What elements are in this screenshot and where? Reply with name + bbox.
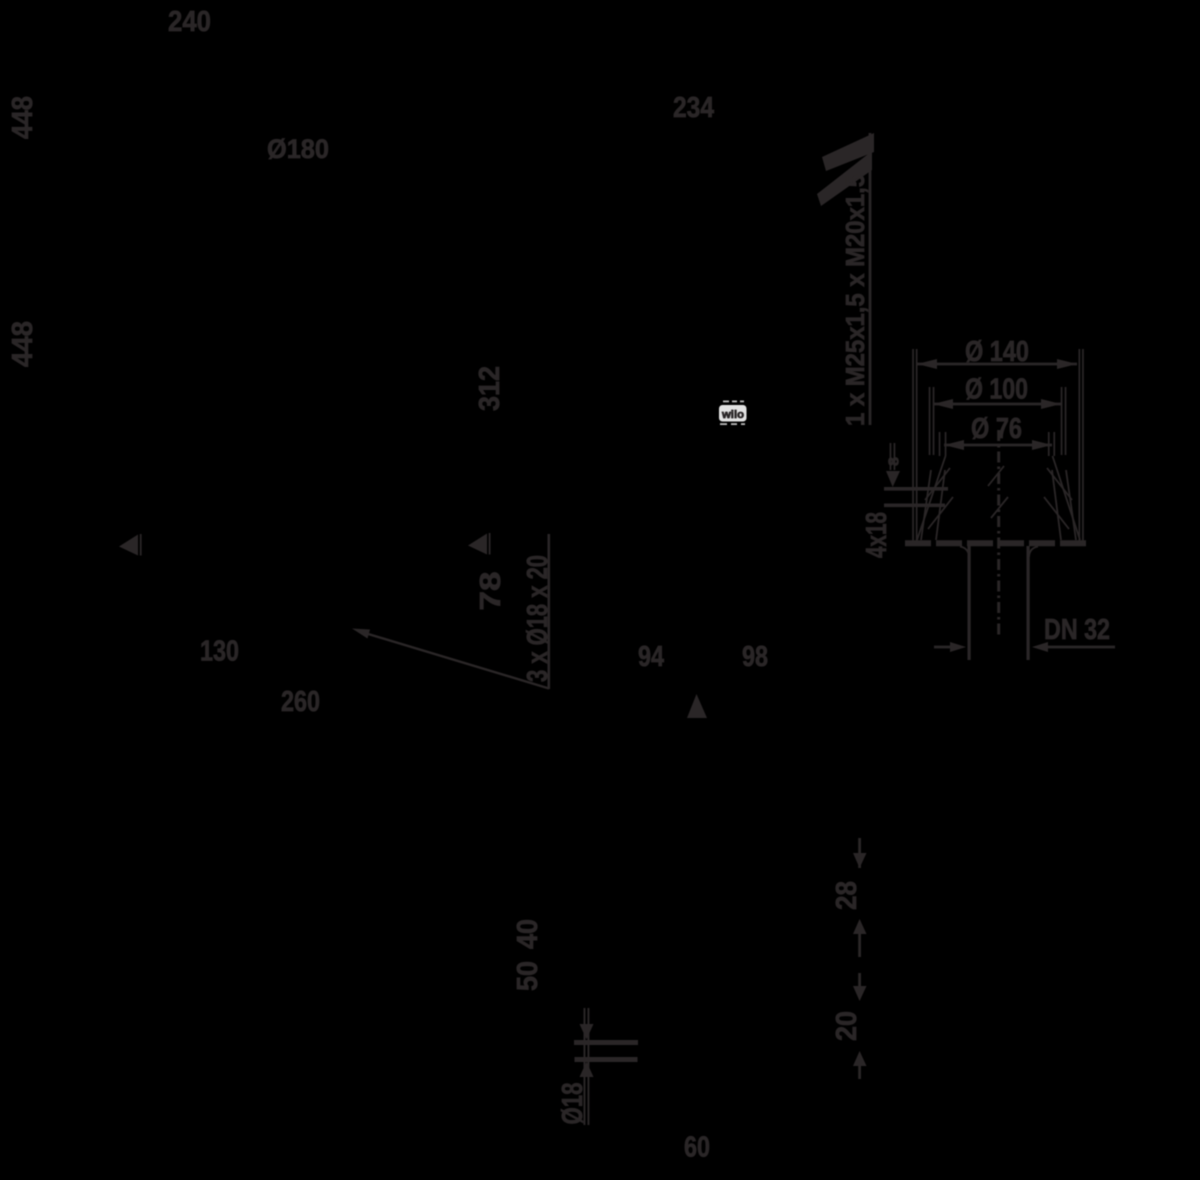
svg-text:1 x M25x1,5 x M20x1,5: 1 x M25x1,5 x M20x1,5 [840, 174, 870, 426]
svg-text:8: 8 [886, 457, 903, 466]
svg-text:98: 98 [742, 641, 768, 673]
svg-text:234: 234 [673, 92, 714, 124]
svg-text:94: 94 [638, 641, 664, 673]
svg-text:448: 448 [7, 96, 39, 139]
svg-text:60: 60 [684, 1132, 710, 1164]
svg-text:448: 448 [7, 321, 39, 367]
svg-text:130: 130 [200, 636, 239, 668]
svg-text:wilo: wilo [721, 409, 744, 421]
svg-text:Ø 76: Ø 76 [971, 413, 1022, 445]
svg-text:28: 28 [831, 881, 863, 910]
svg-text:40: 40 [512, 919, 544, 949]
svg-text:78: 78 [475, 572, 507, 611]
svg-text:4x18: 4x18 [861, 512, 893, 558]
svg-text:240: 240 [168, 6, 211, 38]
svg-text:20: 20 [831, 1011, 863, 1041]
svg-text:312: 312 [474, 366, 506, 411]
svg-text:260: 260 [281, 686, 320, 718]
svg-text:Ø180: Ø180 [267, 134, 329, 164]
svg-text:DN 32: DN 32 [1044, 614, 1110, 646]
svg-text:Ø 100: Ø 100 [965, 374, 1028, 406]
svg-text:50: 50 [512, 961, 544, 991]
